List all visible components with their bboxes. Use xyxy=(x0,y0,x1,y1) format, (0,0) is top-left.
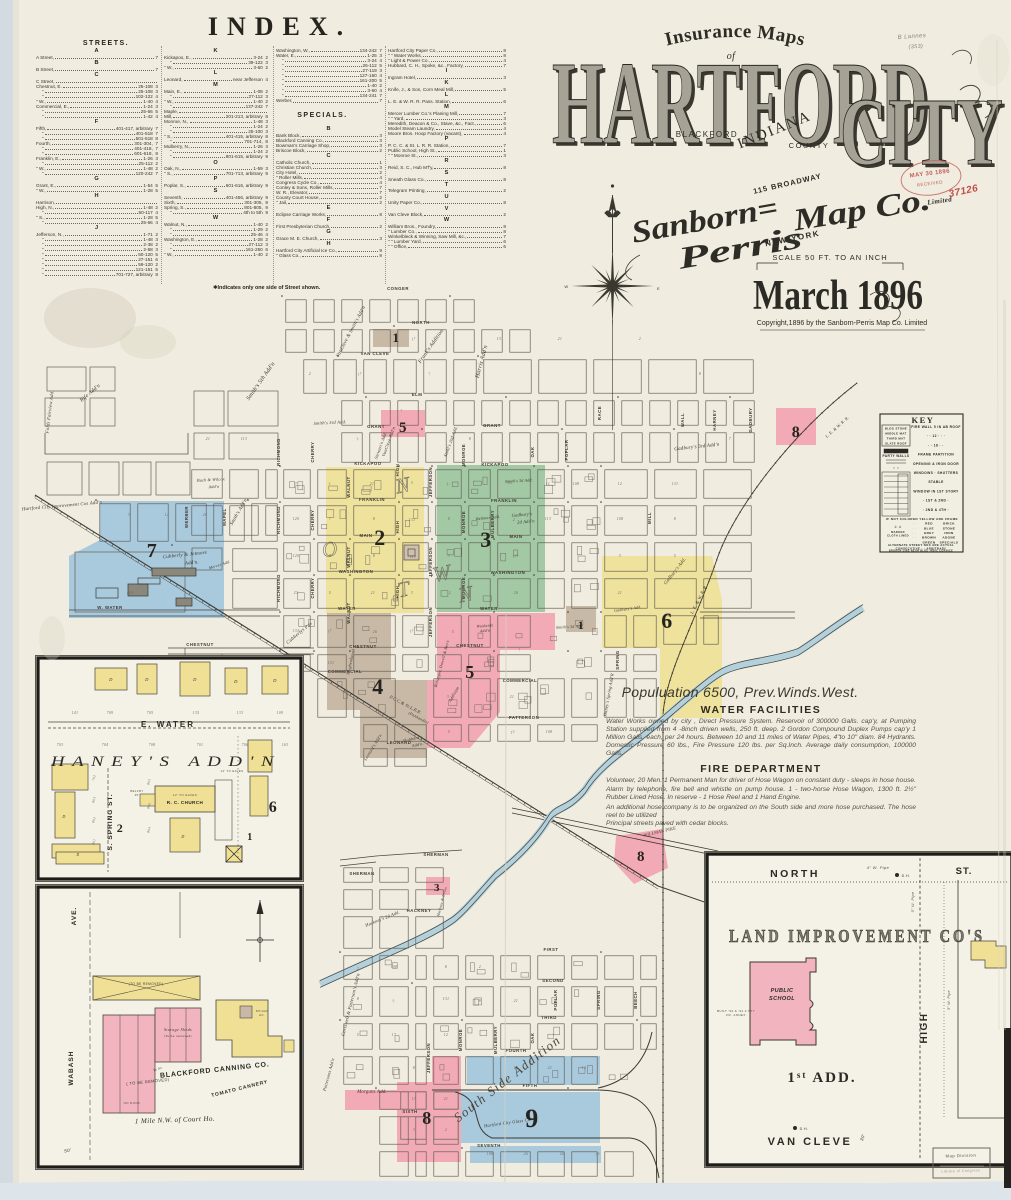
svg-text:120: 120 xyxy=(293,554,300,558)
svg-text:21: 21 xyxy=(618,591,622,595)
svg-text:Copyright,1896 by the Sanborn-: Copyright,1896 by the Sanborn-Perris Map… xyxy=(757,320,928,327)
svg-text:GADBURY: GADBURY xyxy=(748,407,753,432)
svg-text:2: 2 xyxy=(357,967,359,971)
svg-text:3: 3 xyxy=(411,591,413,595)
svg-text:WINDOW IN 1ST STORY: WINDOW IN 1ST STORY xyxy=(913,489,959,493)
svg-text:21: 21 xyxy=(514,999,518,1003)
svg-text:HIGH: HIGH xyxy=(395,521,400,534)
svg-text:HARNEY: HARNEY xyxy=(712,409,717,430)
svg-text:SCHOOL: SCHOOL xyxy=(769,996,795,1002)
svg-text:D: D xyxy=(108,677,113,682)
svg-text:PARTY WALLS: PARTY WALLS xyxy=(883,454,910,458)
svg-text:BEECH: BEECH xyxy=(633,991,638,1009)
svg-text:CHESTNUT: CHESTNUT xyxy=(456,643,483,648)
svg-text:ST.: ST. xyxy=(956,866,973,877)
svg-text:131: 131 xyxy=(409,518,416,522)
svg-text:21: 21 xyxy=(444,1097,448,1101)
svg-text:RICHMOND: RICHMOND xyxy=(276,506,281,534)
svg-text:12' TO EAVES: 12' TO EAVES xyxy=(173,793,197,797)
svg-text:5: 5 xyxy=(329,591,331,595)
svg-text:E. WATER: E. WATER xyxy=(141,720,195,729)
svg-text:2: 2 xyxy=(445,1128,447,1132)
svg-text:· ·: · · xyxy=(912,531,916,535)
svg-text:RACE: RACE xyxy=(597,406,602,420)
svg-text:CHERRY: CHERRY xyxy=(310,578,315,599)
svg-text:8: 8 xyxy=(448,517,450,521)
svg-text:WASHINGTON: WASHINGTON xyxy=(339,569,374,574)
svg-text:GREY: GREY xyxy=(924,531,935,535)
svg-text:THIRD MAT: THIRD MAT xyxy=(887,437,906,441)
svg-text:1: 1 xyxy=(578,618,584,632)
svg-text:KICKAPOO: KICKAPOO xyxy=(354,461,381,466)
svg-text:RICHMOND: RICHMOND xyxy=(276,574,281,602)
svg-text:MAIN: MAIN xyxy=(360,533,373,538)
svg-text:SHERMAN: SHERMAN xyxy=(349,871,374,876)
svg-text:5: 5 xyxy=(357,1033,359,1037)
svg-text:21: 21 xyxy=(510,695,514,699)
svg-text:3: 3 xyxy=(480,527,491,552)
svg-text:Storage Sheds: Storage Sheds xyxy=(164,1027,192,1032)
svg-text:RED: RED xyxy=(925,522,933,526)
svg-text:HACKNEY: HACKNEY xyxy=(407,908,432,913)
svg-text:8: 8 xyxy=(422,1108,431,1128)
svg-text:Add'n: Add'n xyxy=(479,628,491,634)
svg-text:26: 26 xyxy=(203,513,207,517)
svg-text:WALNUT: WALNUT xyxy=(346,546,351,567)
svg-text:D: D xyxy=(192,677,197,682)
svg-text:MIDDLE MAT: MIDDLE MAT xyxy=(885,432,906,436)
svg-text:FIFTH: FIFTH xyxy=(523,1083,538,1088)
svg-text:SCALE 50 FT. TO AN INCH: SCALE 50 FT. TO AN INCH xyxy=(772,253,887,262)
svg-text:HANEY'S ADD'N: HANEY'S ADD'N xyxy=(50,754,281,770)
svg-text:BLUE: BLUE xyxy=(924,526,934,530)
svg-text:IF NOT COLORED YELLOW ARE FRAM: IF NOT COLORED YELLOW ARE FRAME xyxy=(886,517,958,521)
svg-text:KEY: KEY xyxy=(912,415,935,425)
svg-text:SEVENTH: SEVENTH xyxy=(477,1143,501,1148)
svg-text:12: 12 xyxy=(618,482,622,486)
svg-text:LAND IMPROVEMENT CO'S: LAND IMPROVEMENT CO'S xyxy=(729,926,985,946)
svg-text:21: 21 xyxy=(558,337,562,341)
svg-text:23: 23 xyxy=(294,591,298,595)
svg-text:D: D xyxy=(233,679,238,684)
svg-text:WERBER: WERBER xyxy=(184,506,189,528)
svg-text:WASHINGTON: WASHINGTON xyxy=(491,570,526,575)
svg-text:8: 8 xyxy=(373,517,375,521)
svg-text:(353): (353) xyxy=(908,43,923,50)
svg-text:SPRING: SPRING xyxy=(596,990,601,1010)
svg-text:MAIN: MAIN xyxy=(510,534,523,539)
svg-text:108: 108 xyxy=(391,965,398,969)
svg-text:108: 108 xyxy=(573,482,580,486)
svg-text:17: 17 xyxy=(392,1033,396,1037)
svg-text:163: 163 xyxy=(282,743,289,747)
svg-text:109: 109 xyxy=(277,711,284,715)
svg-text:708: 708 xyxy=(149,743,156,747)
svg-text:CLOTH LINED: CLOTH LINED xyxy=(887,534,909,538)
svg-text:3: 3 xyxy=(434,882,440,894)
svg-text:D.H.: D.H. xyxy=(800,1127,809,1131)
svg-text:8: 8 xyxy=(445,965,447,969)
svg-text:COMMERCIAL: COMMERCIAL xyxy=(503,678,538,683)
svg-text:RICHMOND: RICHMOND xyxy=(276,438,281,466)
svg-text:· 2ND & 4TH ·: · 2ND & 4TH · xyxy=(923,508,949,512)
svg-text:3: 3 xyxy=(619,554,621,558)
svg-text:WABASH: WABASH xyxy=(68,1051,75,1086)
svg-text:AVE.: AVE. xyxy=(71,907,78,926)
svg-text:NORTH: NORTH xyxy=(412,320,430,325)
svg-text:GRANT: GRANT xyxy=(483,423,501,428)
svg-text:5: 5 xyxy=(399,420,407,436)
svg-text:MONROE: MONROE xyxy=(461,444,466,466)
svg-text:BROWN: BROWN xyxy=(922,536,936,540)
svg-text:FRANKLIN: FRANKLIN xyxy=(491,498,517,503)
svg-text:21: 21 xyxy=(548,1066,552,1070)
svg-text:POPLAR: POPLAR xyxy=(553,989,558,1010)
svg-text:21: 21 xyxy=(206,437,210,441)
svg-text:CHESTNUT: CHESTNUT xyxy=(349,644,376,649)
svg-text:12: 12 xyxy=(514,1066,518,1070)
svg-text:MARKED: MARKED xyxy=(891,530,905,534)
svg-text:D: D xyxy=(61,814,65,819)
svg-text:VAN CLEVE: VAN CLEVE xyxy=(768,1136,853,1148)
svg-text:113: 113 xyxy=(241,437,247,441)
svg-text:· · 12 · · ·: · · 12 · · · xyxy=(927,434,946,438)
svg-text:· ·: · · xyxy=(912,536,916,540)
svg-text:· ·: · · xyxy=(912,522,916,526)
svg-text:23: 23 xyxy=(508,481,512,485)
svg-text:2: 2 xyxy=(639,337,641,341)
svg-text:131: 131 xyxy=(443,997,450,1001)
svg-text:FR. ANNEX: FR. ANNEX xyxy=(726,1013,745,1017)
svg-text:VAN CLEVE: VAN CLEVE xyxy=(361,351,390,356)
svg-text:3: 3 xyxy=(128,513,130,517)
svg-text:8: 8 xyxy=(469,437,471,441)
svg-text:NO ROOF: NO ROOF xyxy=(124,1101,141,1105)
svg-text:7: 7 xyxy=(295,482,297,486)
svg-text:FOURTH: FOURTH xyxy=(506,1048,527,1053)
svg-text:SPRING: SPRING xyxy=(615,650,620,670)
svg-text:2: 2 xyxy=(479,965,481,969)
svg-text:E: E xyxy=(657,286,660,291)
svg-text:OAK: OAK xyxy=(530,1032,535,1043)
svg-text:WALNUT: WALNUT xyxy=(346,476,351,497)
svg-text:GRANT: GRANT xyxy=(367,424,385,429)
svg-text:108: 108 xyxy=(487,1152,494,1156)
svg-text:WINDOWS · SHUTTERS: WINDOWS · SHUTTERS xyxy=(914,471,959,475)
svg-text:JEFFERSON: JEFFERSON xyxy=(426,1043,431,1073)
svg-text:STONE: STONE xyxy=(943,526,956,530)
svg-text:12: 12 xyxy=(165,513,169,517)
svg-text:Add'n: Add'n xyxy=(207,484,219,490)
svg-text:FRAME PARTITION: FRAME PARTITION xyxy=(918,453,954,457)
svg-text:PUBLIC: PUBLIC xyxy=(771,988,795,994)
svg-text:1: 1 xyxy=(247,832,252,843)
svg-text:8: 8 xyxy=(413,1066,415,1070)
svg-text:705: 705 xyxy=(147,711,154,715)
svg-text:MONROE: MONROE xyxy=(458,1029,463,1051)
svg-text:Morgans Add.: Morgans Add. xyxy=(356,1090,387,1095)
svg-text:6: 6 xyxy=(661,608,672,633)
svg-text:8: 8 xyxy=(637,849,645,865)
svg-text:26: 26 xyxy=(524,1152,528,1156)
svg-text:6: 6 xyxy=(269,799,277,816)
svg-text:ADOBE: ADOBE xyxy=(942,536,955,540)
svg-text:ELM: ELM xyxy=(412,392,423,397)
svg-text:8: 8 xyxy=(357,997,359,1001)
svg-text:133: 133 xyxy=(237,711,244,715)
svg-text:2: 2 xyxy=(449,591,451,595)
svg-text:12: 12 xyxy=(444,1033,448,1037)
svg-text:2: 2 xyxy=(309,372,311,376)
svg-text:D: D xyxy=(272,678,277,683)
svg-text:JEFFERSON: JEFFERSON xyxy=(428,607,433,637)
svg-text:BLDG STONE: BLDG STONE xyxy=(885,427,907,431)
svg-text:CHESTNUT: CHESTNUT xyxy=(186,642,213,647)
svg-text:IRON: IRON xyxy=(944,531,954,535)
svg-text:4" W. Pipe: 4" W. Pipe xyxy=(867,865,890,870)
svg-text:BRICK: BRICK xyxy=(943,522,955,526)
svg-text:STABLE: STABLE xyxy=(928,480,944,484)
svg-text:5: 5 xyxy=(674,554,676,558)
svg-text:MONROE: MONROE xyxy=(461,511,466,533)
svg-text:NORTH: NORTH xyxy=(770,868,820,880)
svg-text:7: 7 xyxy=(729,437,731,441)
svg-text:OAK: OAK xyxy=(530,446,535,457)
svg-text:3: 3 xyxy=(448,554,450,558)
svg-text:BLACKFORD: BLACKFORD xyxy=(676,130,738,139)
svg-text:12' TO EAVES: 12' TO EAVES xyxy=(221,769,244,773)
svg-text:BOILER: BOILER xyxy=(256,1009,268,1013)
svg-text:131: 131 xyxy=(328,661,335,665)
svg-text:JEFFERSON: JEFFERSON xyxy=(428,467,433,497)
svg-text:4: 4 xyxy=(372,674,383,699)
svg-text:5" W. Pipe: 5" W. Pipe xyxy=(911,892,915,913)
svg-text:CHERRY: CHERRY xyxy=(310,510,315,531)
svg-text:45': 45' xyxy=(135,793,140,797)
svg-text:D: D xyxy=(180,834,184,839)
svg-text:9: 9 xyxy=(525,1104,538,1133)
svg-text:WALNUT: WALNUT xyxy=(346,602,351,623)
svg-text:D: D xyxy=(144,677,149,682)
svg-text:5: 5 xyxy=(452,630,454,634)
svg-text:D.H.: D.H. xyxy=(902,874,911,878)
svg-text:MULBERRY: MULBERRY xyxy=(493,1026,498,1054)
svg-text:CHERRY: CHERRY xyxy=(310,442,315,463)
svg-text:5: 5 xyxy=(465,662,474,682)
svg-text:5" W. Pipe: 5" W. Pipe xyxy=(947,990,951,1010)
svg-text:① ②: ① ② xyxy=(894,525,901,529)
svg-text:17: 17 xyxy=(412,1097,416,1101)
svg-text:(To be removed): (To be removed) xyxy=(164,1034,192,1038)
svg-text:HO.: HO. xyxy=(259,1013,265,1017)
svg-text:Map Division: Map Division xyxy=(946,1152,977,1158)
svg-text:26: 26 xyxy=(373,630,377,634)
svg-text:706: 706 xyxy=(242,743,249,747)
svg-text:21: 21 xyxy=(370,482,374,486)
svg-text:MILL: MILL xyxy=(647,512,652,524)
svg-text:W: W xyxy=(564,284,568,289)
svg-text:D: D xyxy=(76,853,80,857)
svg-text:· 1ST & 2ND ·: · 1ST & 2ND · xyxy=(923,499,949,503)
svg-text:COUNTY: COUNTY xyxy=(789,141,830,150)
svg-text:· · 18 · ·: · · 18 · · xyxy=(928,443,944,447)
svg-text:KICKAPOO: KICKAPOO xyxy=(481,462,508,467)
svg-text:W. WATER: W. WATER xyxy=(97,605,123,610)
svg-text:S. SPRING ST.: S. SPRING ST. xyxy=(107,793,114,850)
svg-text:5: 5 xyxy=(448,730,450,734)
svg-text:108: 108 xyxy=(546,730,553,734)
svg-text:7: 7 xyxy=(329,517,331,521)
svg-text:· ·: · · xyxy=(912,526,916,530)
svg-text:703: 703 xyxy=(57,743,64,747)
svg-text:3: 3 xyxy=(413,1128,415,1132)
svg-text:3: 3 xyxy=(447,695,449,699)
svg-text:SIXTH: SIXTH xyxy=(402,1109,417,1114)
svg-text:8: 8 xyxy=(479,999,481,1003)
svg-text:2: 2 xyxy=(513,518,515,522)
svg-text:709: 709 xyxy=(107,711,114,715)
svg-text:701: 701 xyxy=(197,743,204,747)
svg-text:21: 21 xyxy=(371,591,375,595)
svg-text:26: 26 xyxy=(514,591,518,595)
svg-text:8: 8 xyxy=(674,517,676,521)
svg-text:108: 108 xyxy=(617,517,624,521)
svg-text:PATTERSON: PATTERSON xyxy=(509,715,539,720)
svg-text:CONGER: CONGER xyxy=(387,286,409,291)
svg-text:3: 3 xyxy=(411,481,413,485)
svg-text:SLATE ROOF: SLATE ROOF xyxy=(885,442,907,446)
svg-text:R. C. CHURCH: R. C. CHURCH xyxy=(167,800,204,805)
svg-text:26: 26 xyxy=(560,1152,564,1156)
svg-text:141: 141 xyxy=(72,711,79,715)
svg-text:FRANKLIN: FRANKLIN xyxy=(359,497,385,502)
svg-text:7: 7 xyxy=(329,554,331,558)
svg-text:FIRST: FIRST xyxy=(544,947,559,952)
svg-text:113: 113 xyxy=(545,517,551,521)
svg-text:2: 2 xyxy=(117,821,123,835)
svg-text:131: 131 xyxy=(293,629,300,633)
svg-text:131: 131 xyxy=(672,482,679,486)
svg-text:2: 2 xyxy=(374,525,385,550)
svg-text:2 D: 2 D xyxy=(975,935,982,939)
svg-text:March 1896: March 1896 xyxy=(753,273,923,319)
svg-text:8: 8 xyxy=(699,372,701,376)
svg-text:OPENING & IRON DOOR: OPENING & IRON DOOR xyxy=(913,462,959,466)
svg-text:FIRE WALL 5 IN AB ROOF: FIRE WALL 5 IN AB ROOF xyxy=(911,425,960,429)
svg-text:THIRD: THIRD xyxy=(541,1015,557,1020)
svg-text:○ ○: ○ ○ xyxy=(893,466,900,470)
svg-text:(TO BE REMOVED): (TO BE REMOVED) xyxy=(129,982,164,986)
svg-text:12: 12 xyxy=(582,1066,586,1070)
svg-text:WATER: WATER xyxy=(480,606,498,611)
svg-text:704: 704 xyxy=(102,743,109,747)
svg-text:WALL: WALL xyxy=(680,413,685,427)
svg-text:1: 1 xyxy=(393,330,400,345)
svg-text:7: 7 xyxy=(147,540,157,562)
svg-text:SECOND: SECOND xyxy=(542,978,563,983)
svg-text:135: 135 xyxy=(193,711,200,715)
svg-text:8: 8 xyxy=(792,424,800,441)
svg-text:131: 131 xyxy=(497,337,504,341)
svg-text:120: 120 xyxy=(293,517,300,521)
svg-text:113: 113 xyxy=(410,555,416,559)
svg-text:HIGH: HIGH xyxy=(919,1013,930,1044)
svg-text:BROKEN LINE NEAR BLDG INDIC CO: BROKEN LINE NEAR BLDG INDIC CORNICE xyxy=(889,550,953,553)
svg-text:POPLAR: POPLAR xyxy=(564,439,569,460)
svg-text:MAPEL: MAPEL xyxy=(222,508,227,526)
svg-text:8: 8 xyxy=(373,554,375,558)
svg-text:CITY: CITY xyxy=(840,78,1003,185)
